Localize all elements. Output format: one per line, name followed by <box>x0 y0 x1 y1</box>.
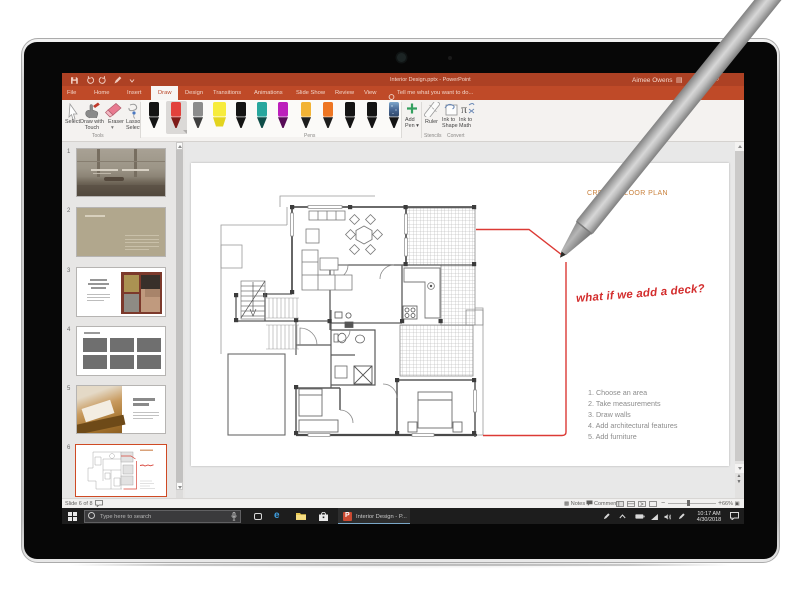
svg-text:π: π <box>461 102 467 116</box>
